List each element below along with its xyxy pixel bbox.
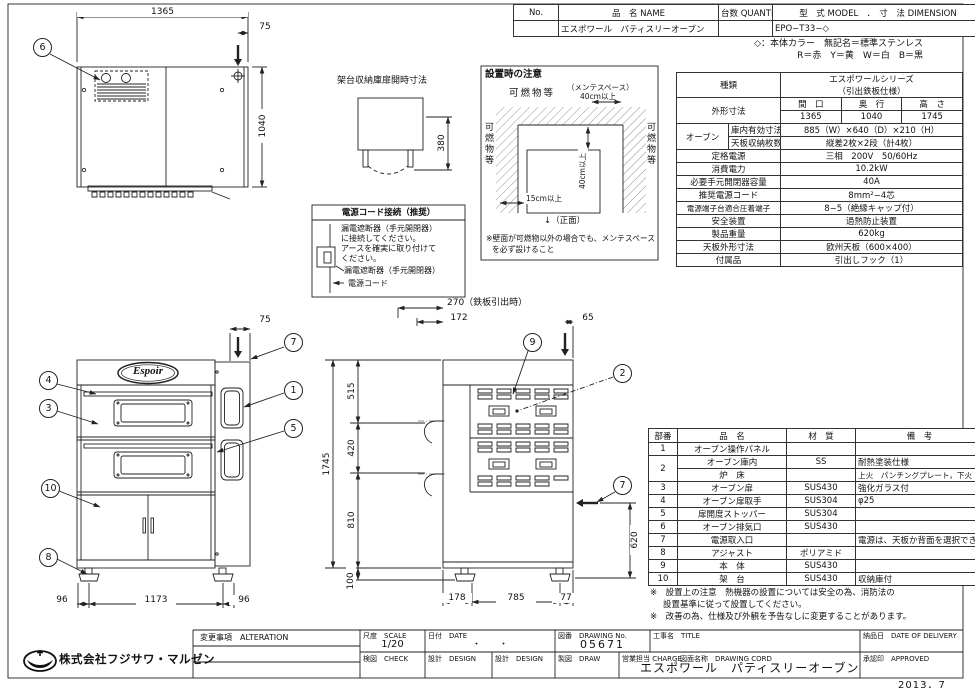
spec-row-value: 欧州天板（600×400） (781, 241, 963, 254)
part-material (787, 443, 856, 456)
delivery-date-label: 納品日 DATE OF DELIVERY (863, 631, 957, 642)
balloon-7-front: 7 (284, 333, 303, 352)
side-dim-100: 100 (346, 566, 356, 596)
spec-depth-value: 1040 (841, 111, 902, 124)
project-title-label: 工事名 TITLE (653, 631, 700, 642)
parts-note-header: 備 考 (856, 429, 975, 443)
part-material (787, 534, 856, 547)
power-cord-l4: ください。 (341, 253, 381, 264)
installation-note2: を必ず設けること (492, 244, 554, 255)
side-dim-420: 420 (347, 433, 357, 463)
header-name-value: エスポワール パティスリーオーブン (559, 21, 719, 37)
part-name: オーブン排気口 (678, 521, 787, 534)
installation-top-label: 可燃物等 (509, 88, 555, 99)
part-no: 9 (649, 560, 678, 573)
spec-shelf-value: 縦差2枚×2段（計4枚） (781, 137, 963, 150)
spec-width-label: 間 口 (781, 98, 842, 111)
header-name-label: 品 名 NAME (559, 5, 719, 21)
side-dim-77: 77 (552, 593, 580, 603)
header-model-dim-label: 型 式 MODEL ． 寸 法 DIMENSION (773, 5, 975, 21)
power-cord-title: 電源コード接続（推奨） (312, 208, 465, 219)
side-dim-pullout: 270（鉄板引出時） (447, 298, 527, 308)
part-material (787, 469, 856, 482)
spec-table: 種類 エスポワールシリーズ（引出鉄板仕様） 外形寸法 間 口 奥 行 高 さ 1… (676, 72, 963, 267)
top-view-dim-offset: 75 (252, 22, 278, 32)
spec-row-value: 620kg (781, 228, 963, 241)
installation-v-dim: 40cm以上 (578, 148, 588, 194)
part-note: 強化ガラス付 (856, 482, 975, 495)
spec-row-value: 過熱防止装置 (781, 215, 963, 228)
approved-label: 承認印 APPROVED (863, 654, 929, 665)
balloon-leaders (50, 54, 615, 574)
design2-label: 設計 DESIGN (428, 654, 476, 665)
installation-diagram (481, 66, 658, 260)
side-dim-178: 178 (442, 593, 472, 603)
spec-row-label: 天板外形寸法 (677, 241, 781, 254)
power-cord-cord-label: 電源コード (348, 278, 388, 289)
balloon-7-side: 7 (613, 476, 632, 495)
part-name: アジャスト (678, 547, 787, 560)
spec-kind-line1: エスポワールシリーズ (829, 75, 914, 85)
spec-row-value: 10.2kW (781, 163, 963, 176)
parts-name-header: 品 名 (678, 429, 787, 443)
company-logo-icon (24, 650, 56, 671)
balloon-2: 2 (613, 364, 632, 383)
top-view-dim-width: 1365 (77, 7, 248, 17)
spec-inner-label: 庫内有効寸法 (729, 124, 781, 137)
remark-line3: ※ 改善の為、仕様及び外観を予告なしに変更することがあります。 (650, 612, 911, 623)
stand-door-title: 架台収納庫扉開時寸法 (337, 76, 427, 87)
part-note (856, 521, 975, 534)
spec-row-value: 8−5（絶縁キャップ付） (781, 202, 963, 215)
balloon-3: 3 (39, 399, 58, 418)
part-name: 本 体 (678, 560, 787, 573)
header-no-label: No. (514, 5, 559, 21)
combustible-wall-hatch (496, 107, 646, 213)
spec-kind-label: 種類 (677, 73, 781, 98)
color-note-line2: R＝赤 Y＝黄 W＝白 B＝黒 (690, 51, 923, 62)
issue-date: 2013．7 (898, 680, 946, 691)
header-qty-label: 台数 QUANTITY (719, 5, 773, 21)
color-note-line1: ◇：本体カラー 無記名＝標準ステンレス (690, 39, 923, 50)
spec-row-label: 安全装置 (677, 215, 781, 228)
part-note: 耐熱塗装仕様 (856, 456, 975, 469)
spec-row-value: 三相 200V 50/60Hz (781, 150, 963, 163)
spec-row-label: 電源端子台適合圧着端子 (677, 202, 781, 215)
spec-height-label: 高 さ (902, 98, 963, 111)
part-name: オーブン扉取手 (678, 495, 787, 508)
spec-kind-value: エスポワールシリーズ（引出鉄板仕様） (781, 73, 963, 98)
part-no: 7 (649, 534, 678, 547)
part-material: SS (787, 456, 856, 469)
balloon-1: 1 (284, 381, 303, 400)
part-name: オーブン操作パネル (678, 443, 787, 456)
part-material: SUS430 (787, 560, 856, 573)
front-dim-offset: 75 (252, 315, 278, 325)
installation-note1: ※壁面が可燃物以外の場合でも、メンテスペース (486, 233, 655, 244)
side-dim-172: 172 (445, 313, 473, 323)
installation-h-dim: 15cm以上 (526, 193, 562, 204)
installation-right-label: 可燃物等 (644, 122, 655, 166)
drawing-name-value: エスポワール パティスリーオーブン (640, 663, 860, 674)
top-view-dim-depth: 1040 (258, 109, 268, 143)
date-value: ・ ・ (425, 640, 555, 651)
side-dim-810: 810 (347, 505, 357, 535)
side-dim-620: 620 (630, 525, 640, 555)
scale-value: 1/20 (360, 639, 425, 650)
spec-oven-label: オーブン (677, 124, 729, 150)
top-view-drawing (77, 12, 267, 199)
part-no: 6 (649, 521, 678, 534)
check-label: 検図 CHECK (363, 654, 408, 665)
remark-line1: ※ 設置上の注意 熱機器の設置については安全の為、消防法の (650, 588, 895, 599)
spec-row-label: 付属品 (677, 254, 781, 267)
part-material: SUS430 (787, 573, 856, 586)
balloon-9: 9 (523, 333, 542, 352)
side-dim-785: 785 (496, 593, 536, 603)
side-dim-1745: 1745 (322, 444, 332, 484)
installation-title: 設置時の注意 (485, 69, 542, 80)
espoir-logo-text: Espoir (126, 366, 170, 377)
drawing-no-value: 05671 (555, 639, 650, 650)
part-material: SUS304 (787, 495, 856, 508)
part-no: 2 (649, 456, 678, 482)
drawer-rail-icon (88, 186, 230, 199)
remark-line2: 設置基準に従って設置してください。 (663, 600, 807, 611)
spec-row-label: 定格電源 (677, 150, 781, 163)
side-dim-65: 65 (574, 313, 602, 323)
power-cord-breaker-label: 漏電遮断器（手元開閉器） (344, 265, 440, 276)
draw-label: 製図 DRAW (558, 654, 600, 665)
spec-outer-label: 外形寸法 (677, 98, 781, 124)
part-no: 3 (649, 482, 678, 495)
vent-grille-icon (95, 71, 148, 101)
part-material: ポリアミド (787, 547, 856, 560)
front-dim-center: 1173 (136, 595, 176, 605)
spec-row-value: 40A (781, 176, 963, 189)
parts-no-header: 部番 (649, 429, 678, 443)
part-name: 架 台 (678, 573, 787, 586)
balloon-6: 6 (33, 38, 52, 57)
spec-row-value: 引出しフック（1） (781, 254, 963, 267)
part-note: φ25 (856, 495, 975, 508)
front-dim-left: 96 (47, 595, 77, 605)
part-note (856, 443, 975, 456)
spec-width-value: 1365 (781, 111, 842, 124)
balloon-10: 10 (41, 479, 60, 498)
parts-mat-header: 材 質 (787, 429, 856, 443)
part-name: オーブン庫内 (678, 456, 787, 469)
installation-left-label: 可燃物等 (482, 122, 493, 166)
spec-shelf-label: 天板収納枚数 (729, 137, 781, 150)
part-no: 10 (649, 573, 678, 586)
company-name: 株式会社フジサワ・マルゼン (59, 654, 215, 665)
balloon-5: 5 (284, 419, 303, 438)
spec-kind-line2: （引出鉄板仕様） (837, 87, 905, 97)
front-dim-right: 96 (229, 595, 259, 605)
part-no: 1 (649, 443, 678, 456)
part-no: 4 (649, 495, 678, 508)
part-note (856, 508, 975, 521)
balloon-8: 8 (39, 548, 58, 567)
louver-vents-icon (478, 389, 568, 486)
part-no: 5 (649, 508, 678, 521)
part-material: SUS430 (787, 482, 856, 495)
installation-front-label: ↓（正面） (544, 216, 585, 227)
part-name: 炉 床 (678, 469, 787, 482)
spec-height-value: 1745 (902, 111, 963, 124)
part-note (856, 560, 975, 573)
stand-door-dim-380: 380 (437, 128, 447, 158)
part-note: 電源は、天板か背面を選択できます (856, 534, 975, 547)
part-material: SUS304 (787, 508, 856, 521)
parts-table: 部番 品 名 材 質 備 考 1オーブン操作パネル 2オーブン庫内SS耐熱塗装仕… (648, 428, 975, 586)
part-material: SUS430 (787, 521, 856, 534)
part-name: 電源取入口 (678, 534, 787, 547)
spec-depth-label: 奥 行 (841, 98, 902, 111)
installation-maint-dim: 40cm以上 (580, 91, 616, 102)
part-no: 8 (649, 547, 678, 560)
part-name: オーブン扉 (678, 482, 787, 495)
spec-row-label: 必要手元開閉器容量 (677, 176, 781, 189)
part-note: 収納庫付 (856, 573, 975, 586)
alteration-label: 変更事項 ALTERATION (200, 632, 288, 643)
spec-row-label: 製品重量 (677, 228, 781, 241)
part-name: 扉開度ストッパー (678, 508, 787, 521)
spec-inner-value: 885（W）×640（D）×210（H） (781, 124, 963, 137)
side-view-drawing (325, 308, 636, 606)
adjustable-feet-icon (79, 568, 233, 581)
design-label: 設計 DESIGN (495, 654, 543, 665)
part-note: 上火 パンチングプレート，下火 SS (856, 469, 975, 482)
part-note (856, 547, 975, 560)
side-dim-515: 515 (347, 376, 357, 406)
spec-row-value: 8mm²−4芯 (781, 189, 963, 202)
spec-row-label: 消費電力 (677, 163, 781, 176)
header-table: No. 品 名 NAME 台数 QUANTITY 型 式 MODEL ． 寸 法… (513, 4, 975, 37)
power-entry-mark-icon (231, 45, 245, 83)
header-qty-value (719, 21, 773, 37)
drawing-sheet: No. 品 名 NAME 台数 QUANTITY 型 式 MODEL ． 寸 法… (0, 0, 975, 692)
spec-row-label: 推奨電源コード (677, 189, 781, 202)
header-no-value (514, 21, 559, 37)
balloon-4: 4 (39, 371, 58, 390)
header-model-value: EPO−T33−◇ (773, 21, 975, 37)
